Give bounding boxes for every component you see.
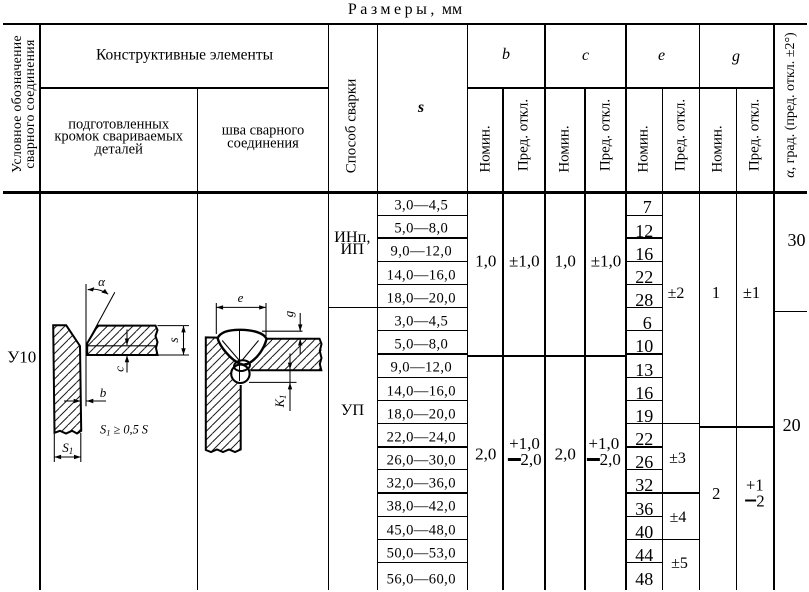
- svg-text:c: c: [112, 366, 127, 372]
- svg-text:α: α: [98, 274, 106, 289]
- svg-text:S1 ≥ 0,5 S: S1 ≥ 0,5 S: [100, 423, 148, 438]
- svg-text:s: s: [166, 337, 181, 342]
- svg-text:e: e: [238, 290, 244, 305]
- svg-text:S1: S1: [62, 440, 73, 456]
- svg-text:b: b: [100, 385, 107, 400]
- svg-text:К1: К1: [273, 395, 288, 409]
- svg-text:g: g: [281, 310, 296, 317]
